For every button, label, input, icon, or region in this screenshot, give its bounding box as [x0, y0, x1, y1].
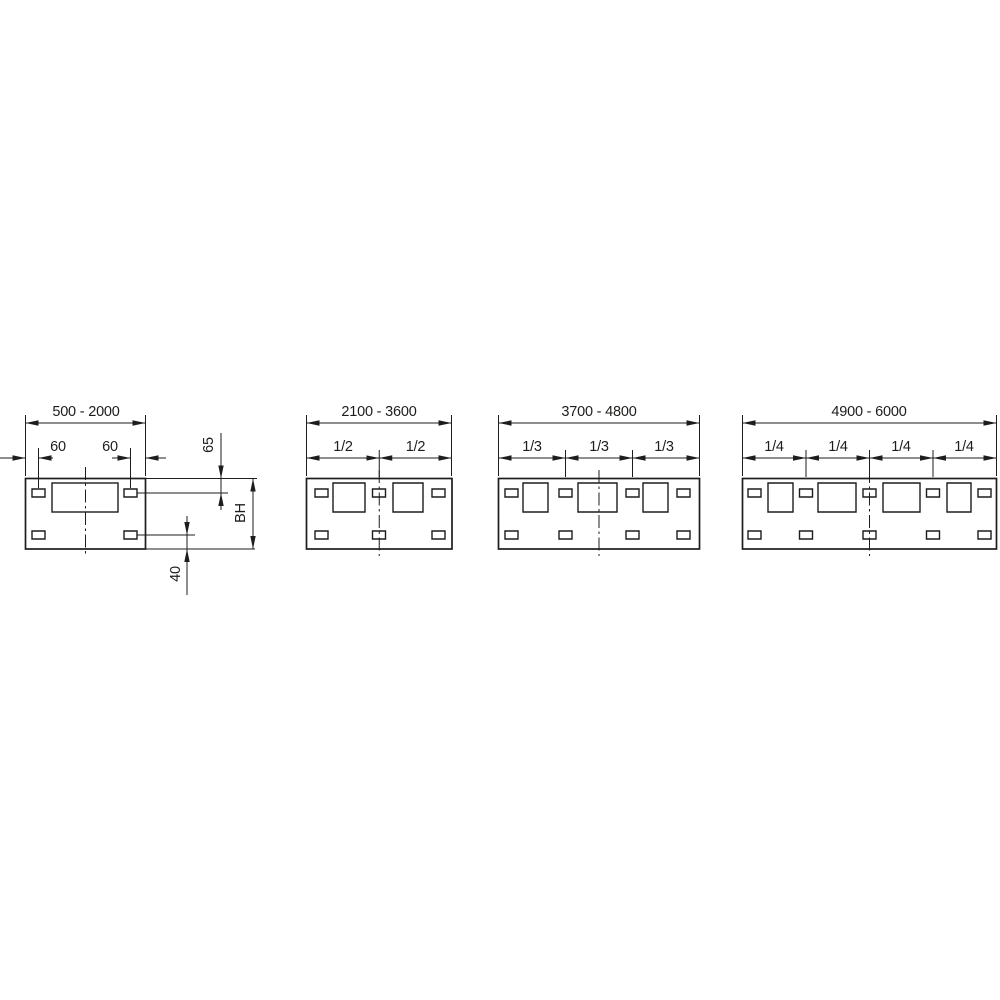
width-range-label: 3700 - 4800	[561, 404, 636, 420]
right-offset-label: 60	[102, 439, 118, 455]
segment-label: 1/4	[891, 439, 911, 455]
segment-label: 1/4	[954, 439, 974, 455]
drawing-canvas: 500 - 2000 60 60 65 BH 40 2100 - 3600	[0, 0, 1000, 1000]
bottom-offset-label: 40	[168, 566, 184, 582]
segment-label: 1/4	[764, 439, 784, 455]
width-range-label: 4900 - 6000	[831, 404, 906, 420]
panel-dimension-drawing: 500 - 2000 60 60 65 BH 40 2100 - 3600	[0, 0, 1000, 1000]
width-range-label: 500 - 2000	[52, 404, 119, 420]
mounting-slots	[32, 489, 137, 539]
mounting-slots	[315, 489, 445, 539]
module-cutouts	[523, 483, 668, 512]
diagram-range-500-2000: 500 - 2000 60 60 65 BH 40	[0, 404, 257, 595]
left-offset-label: 60	[50, 439, 66, 455]
diagram-range-4900-6000: 4900 - 6000 1/4 1/4 1/4 1/4	[743, 404, 997, 556]
height-label: BH	[233, 503, 249, 523]
extension-lines	[307, 415, 452, 477]
segment-label: 1/2	[406, 439, 426, 455]
diagram-range-2100-3600: 2100 - 3600 1/2 1/2	[307, 404, 453, 556]
mounting-slots	[505, 489, 690, 539]
extension-lines	[26, 415, 146, 476]
segment-label: 1/2	[333, 439, 353, 455]
top-offset-label: 65	[201, 437, 217, 453]
segment-label: 1/3	[589, 439, 609, 455]
diagram-range-3700-4800: 3700 - 4800 1/3 1/3 1/3	[499, 404, 700, 556]
segment-label: 1/3	[522, 439, 542, 455]
segment-label: 1/3	[654, 439, 674, 455]
segment-label: 1/4	[828, 439, 848, 455]
width-range-label: 2100 - 3600	[341, 404, 416, 420]
